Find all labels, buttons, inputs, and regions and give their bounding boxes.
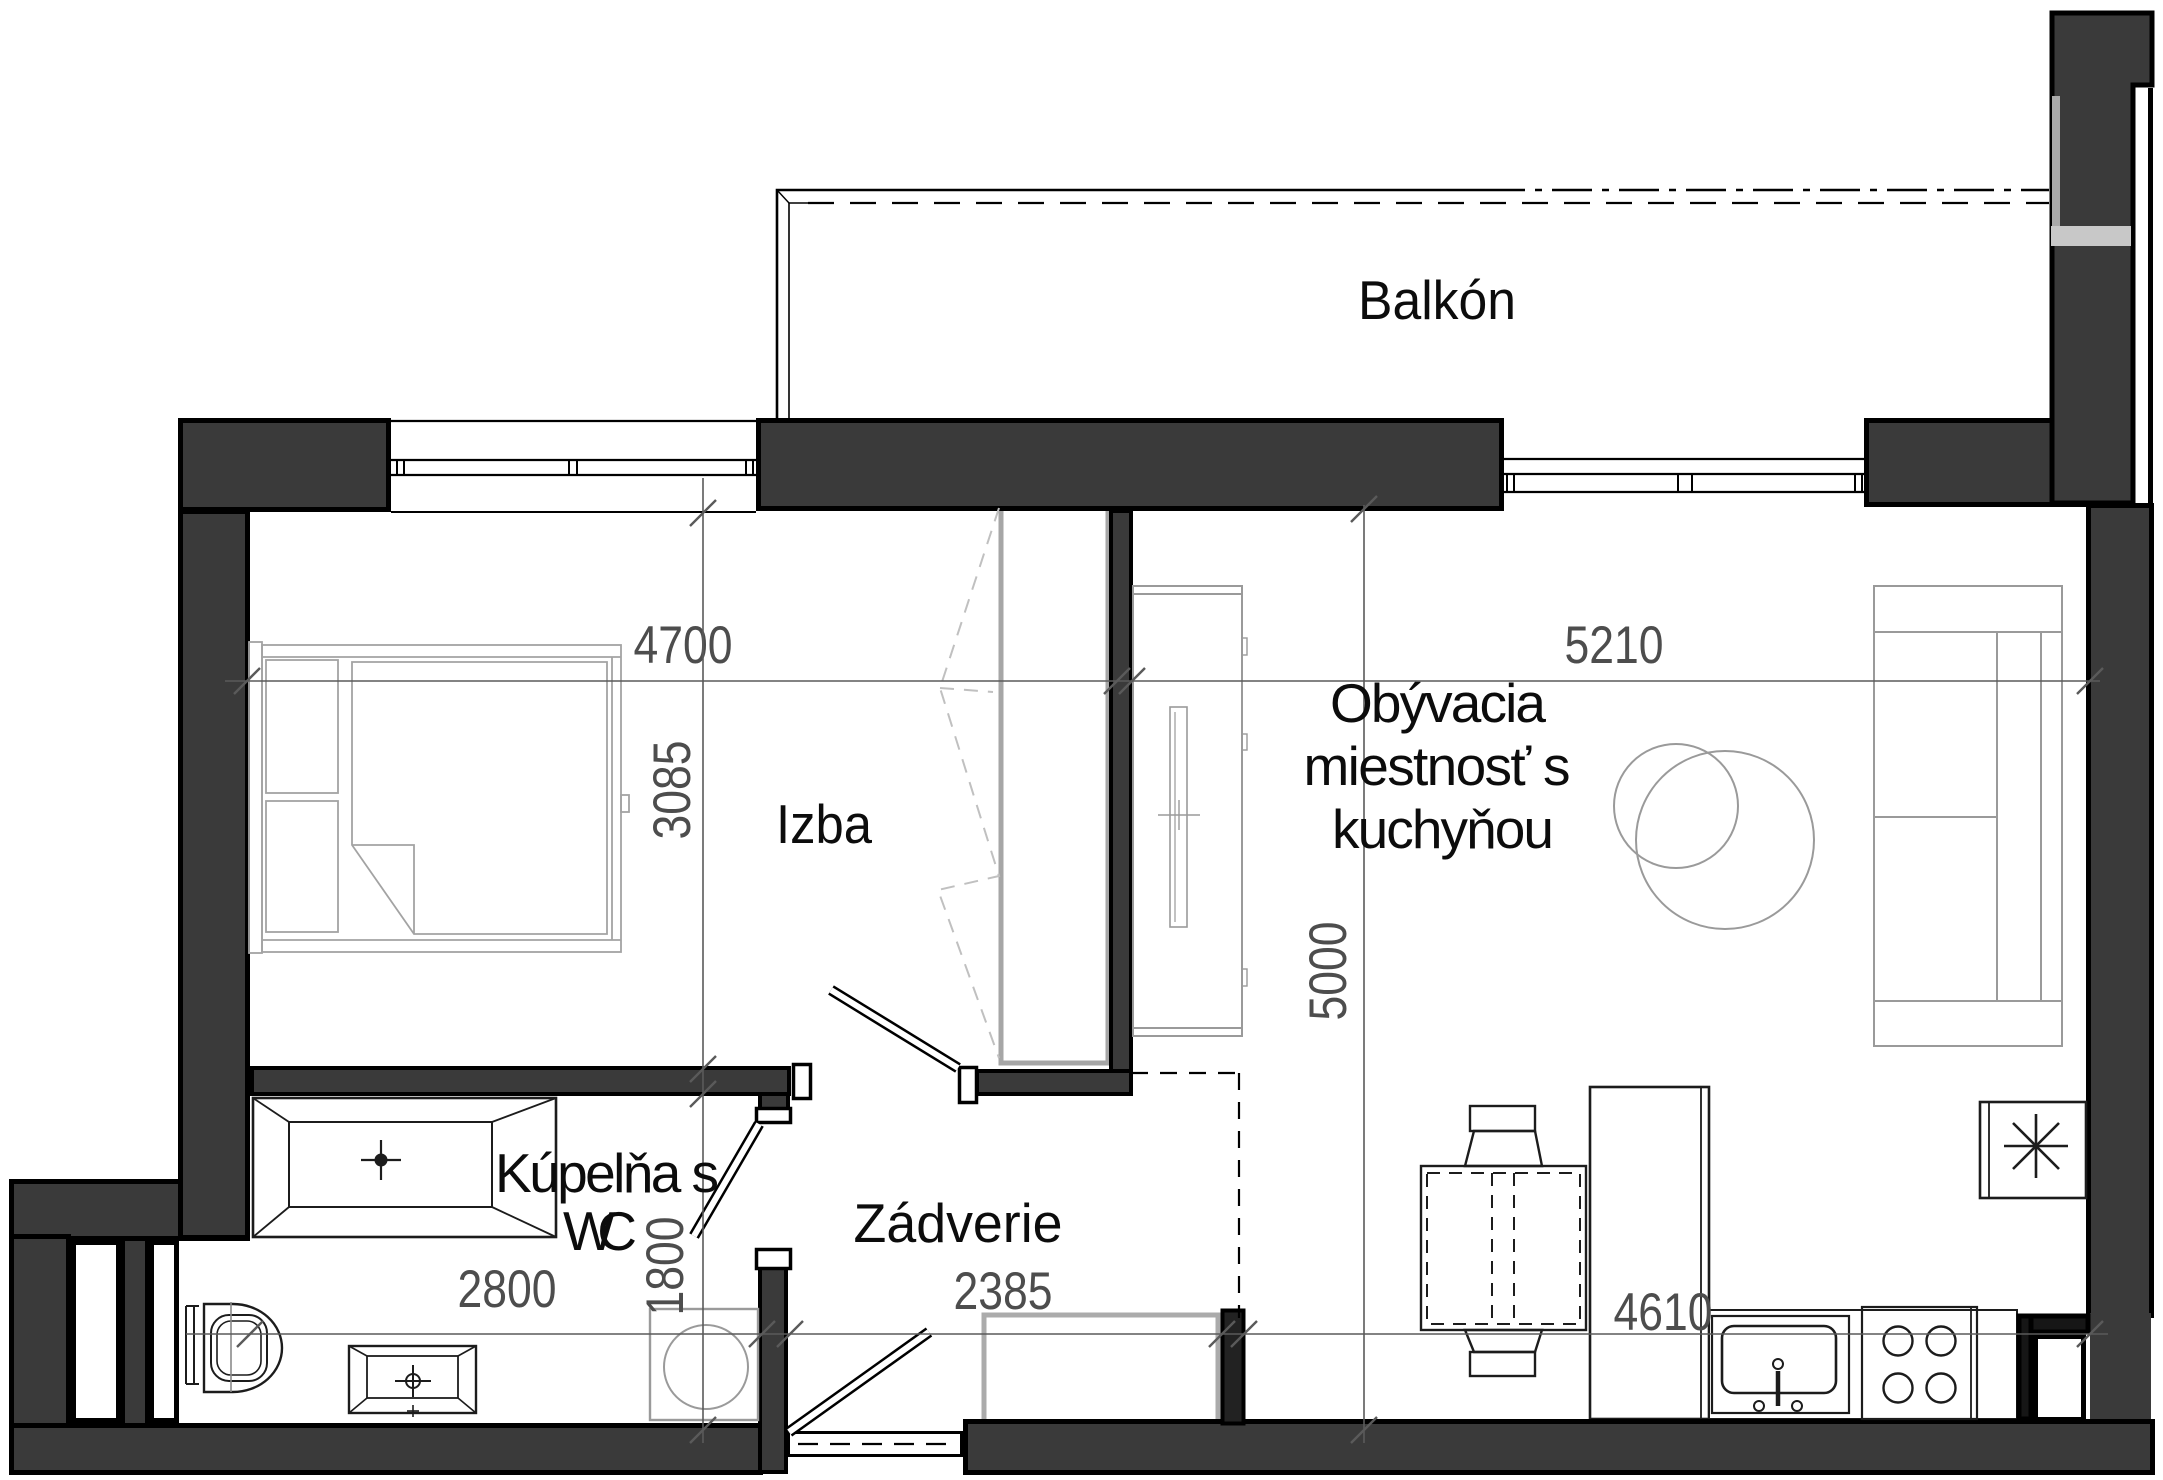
svg-text:miestnosť s: miestnosť s: [1304, 735, 1571, 797]
svg-text:kuchyňou: kuchyňou: [1332, 798, 1554, 860]
svg-text:2385: 2385: [954, 1262, 1053, 1321]
svg-text:Izba: Izba: [776, 793, 872, 855]
svg-text:3085: 3085: [643, 741, 702, 840]
svg-text:Kúpelňa s: Kúpelňa s: [495, 1142, 719, 1204]
svg-text:4700: 4700: [634, 616, 733, 675]
svg-text:Zádverie: Zádverie: [854, 1192, 1063, 1254]
svg-text:2800: 2800: [458, 1260, 557, 1319]
svg-text:WC: WC: [563, 1200, 637, 1262]
svg-text:Obývacia: Obývacia: [1330, 672, 1546, 734]
svg-text:5210: 5210: [1565, 616, 1664, 675]
svg-text:1800: 1800: [636, 1217, 695, 1316]
svg-text:4610: 4610: [1614, 1283, 1713, 1342]
svg-text:Balkón: Balkón: [1358, 269, 1516, 331]
svg-text:5000: 5000: [1299, 922, 1358, 1021]
